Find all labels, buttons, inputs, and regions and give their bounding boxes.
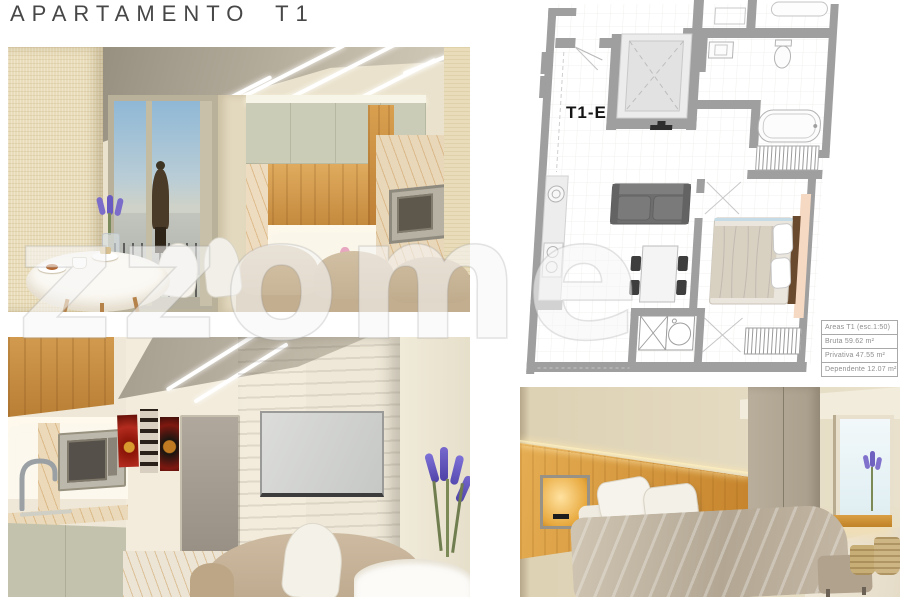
area-table: Areas T1 (esc.1:50) Bruta 59.62 m² Priva… xyxy=(821,321,898,377)
lavender-stem xyxy=(446,479,449,557)
wall-art-triptych xyxy=(118,409,182,479)
table-leg xyxy=(100,303,104,312)
sofa-cushion xyxy=(240,245,318,295)
area-table-row: Dependente 12.07 m² xyxy=(821,362,898,377)
lavender-bloom xyxy=(107,195,113,215)
sofa-cushion xyxy=(314,251,394,299)
area-table-row: Bruta 59.62 m² xyxy=(821,334,898,349)
pastry xyxy=(100,247,111,254)
kitchen-faucet xyxy=(10,449,70,511)
tv-screen xyxy=(260,411,384,497)
lavender-bloom xyxy=(114,198,124,217)
lavender-stem xyxy=(432,481,442,551)
niche-lamp xyxy=(553,514,569,519)
microwave-window xyxy=(397,193,433,233)
bedroom-render xyxy=(520,387,900,597)
microwave xyxy=(389,184,447,244)
area-table-row: Areas T1 (esc.1:50) xyxy=(821,320,898,335)
laundry-plan xyxy=(639,316,695,350)
floor-plan: T1-E Areas T1 (esc.1:50) Bruta 59.62 m² … xyxy=(520,0,900,385)
lavender-bloom xyxy=(440,447,448,481)
upper-cabinet xyxy=(8,337,114,417)
person-silhouette xyxy=(152,169,169,229)
lavender-bloom xyxy=(424,452,440,483)
unit-label: T1-E xyxy=(566,103,607,123)
microwave-window xyxy=(67,438,107,483)
lavender-stem xyxy=(871,467,873,511)
window xyxy=(836,415,894,523)
bench-leg xyxy=(826,589,830,597)
cake-slice xyxy=(46,264,58,270)
lavender-bloom xyxy=(870,451,875,467)
art-panel xyxy=(160,417,179,471)
page-title: APARTAMENTO T1 xyxy=(10,1,315,27)
sofa-cushion xyxy=(390,257,470,303)
living-room-render xyxy=(8,337,470,597)
area-table-row: Privativa 47.55 m² xyxy=(821,348,898,363)
lower-cabinet xyxy=(8,523,126,597)
lavender-bloom xyxy=(875,457,883,471)
interior-door xyxy=(180,415,240,561)
wicker-basket xyxy=(874,537,900,575)
bench-leg xyxy=(862,587,866,595)
art-panel xyxy=(117,415,139,468)
plan-sheared-group xyxy=(522,0,839,374)
cove-light xyxy=(246,95,426,103)
presentation-board: APARTAMENTO T1 xyxy=(0,0,900,597)
coffee-cup xyxy=(72,257,87,269)
lavender-bloom xyxy=(96,197,106,216)
art-panel xyxy=(140,409,158,473)
stair-hatch xyxy=(756,146,819,170)
kitchen-dining-render xyxy=(8,47,470,312)
microwave-panel xyxy=(108,437,117,476)
elevator-shaft xyxy=(616,34,692,130)
lavender-bouquet xyxy=(94,195,128,235)
lavender-plant xyxy=(426,447,470,567)
sofa-plan xyxy=(610,184,690,224)
bed-duvet xyxy=(570,504,850,597)
wicker-basket xyxy=(850,545,876,575)
sofa-armrest xyxy=(190,563,234,597)
lavender-stems xyxy=(108,213,111,235)
